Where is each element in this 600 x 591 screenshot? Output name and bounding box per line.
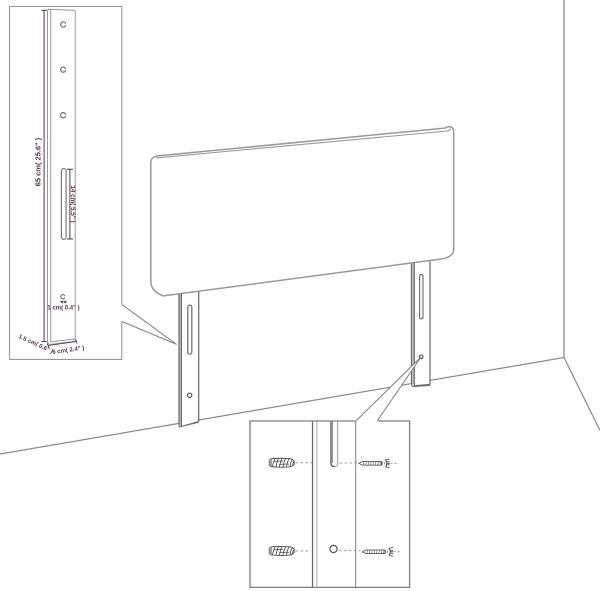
svg-text:1 cm( 0.4" ): 1 cm( 0.4" ) [47, 305, 79, 311]
svg-text:65 cm( 25.6" ): 65 cm( 25.6" ) [33, 137, 42, 186]
svg-text:14 cm( 5.5" ): 14 cm( 5.5" ) [69, 185, 76, 222]
